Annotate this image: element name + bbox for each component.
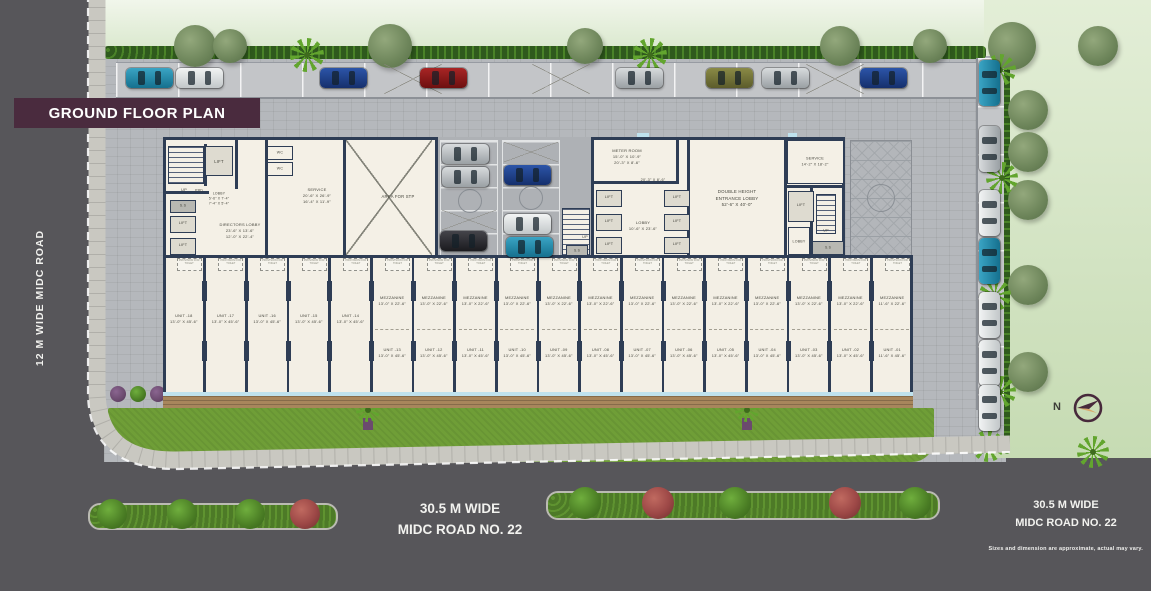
page-title: GROUND FLOOR PLAN bbox=[14, 98, 260, 128]
road-label-right-line1: 30.5 M WIDE bbox=[986, 497, 1146, 515]
road-label-bottom-line1: 30.5 M WIDE bbox=[360, 499, 560, 520]
road-label-right: 30.5 M WIDE MIDC ROAD NO. 22 bbox=[986, 497, 1146, 532]
road-label-right-line2: MIDC ROAD NO. 22 bbox=[986, 515, 1146, 533]
road-label-bottom: 30.5 M WIDE MIDC ROAD NO. 22 bbox=[360, 499, 560, 541]
road-label-left: 12 M WIDE MIDC ROAD bbox=[34, 198, 46, 398]
north-compass-icon bbox=[1072, 392, 1104, 424]
page-title-text: GROUND FLOOR PLAN bbox=[49, 105, 226, 122]
ground-floor-plan-canvas: UPLIFTPRDLOBBY5'-6" X 7'-4"7'-4" X 5'-4"… bbox=[0, 0, 1151, 591]
disclaimer-text: Sizes and dimension are approximate, act… bbox=[989, 546, 1143, 552]
road-label-bottom-line2: MIDC ROAD NO. 22 bbox=[360, 520, 560, 541]
footpath-curb bbox=[0, 0, 1151, 591]
road-label-left-text: 12 M WIDE MIDC ROAD bbox=[34, 230, 46, 366]
compass-north-label: N bbox=[1053, 401, 1061, 413]
